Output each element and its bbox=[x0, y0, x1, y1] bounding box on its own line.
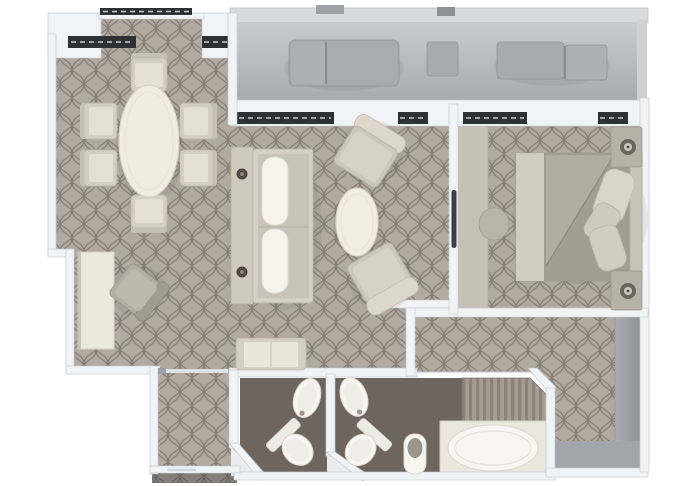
bidet bbox=[404, 434, 426, 474]
bed-foot-runner bbox=[516, 153, 546, 281]
wall-left-upper bbox=[48, 34, 56, 256]
dining-chair-left-1 bbox=[80, 103, 117, 139]
wall-entry-left bbox=[150, 366, 158, 474]
balcony-lounger bbox=[497, 42, 607, 80]
sofa bbox=[253, 149, 313, 303]
balcony-divider-tab bbox=[316, 5, 344, 14]
entry-door bbox=[150, 466, 240, 473]
entry-outside-corridor bbox=[152, 473, 237, 483]
floor-plan-canvas bbox=[0, 0, 680, 486]
wall-bath-bottom bbox=[234, 472, 555, 480]
threshold-tick-l bbox=[158, 368, 166, 374]
wall-bath-partition bbox=[326, 374, 335, 456]
shower-floor bbox=[462, 378, 549, 421]
balcony-side-table bbox=[427, 42, 458, 76]
balcony-divider-tab-2 bbox=[437, 7, 455, 16]
double-bed bbox=[516, 150, 642, 284]
suite-floor-plan bbox=[0, 0, 680, 486]
wall-closet-bottom bbox=[546, 468, 648, 477]
balcony bbox=[230, 5, 648, 106]
dining-chair-right-2 bbox=[180, 150, 217, 186]
dining-chair-left-2 bbox=[80, 150, 117, 186]
nightstand-bottom bbox=[611, 271, 642, 310]
bathrooms bbox=[231, 378, 549, 477]
wall-desk-bottom bbox=[66, 366, 160, 374]
desk bbox=[78, 252, 114, 349]
wall-left-lower bbox=[66, 249, 74, 374]
bedroom-sliding-door-handle bbox=[452, 190, 457, 248]
dining-chair-right-1 bbox=[180, 103, 217, 139]
wall-guest-bath-left bbox=[229, 370, 238, 448]
dining-table bbox=[119, 85, 179, 197]
media-console bbox=[231, 147, 253, 304]
bedroom-stool bbox=[479, 208, 509, 240]
entry-threshold bbox=[158, 369, 236, 373]
balcony-sofa bbox=[289, 40, 399, 86]
wardrobe-run bbox=[615, 316, 641, 443]
closet-floor-strip bbox=[553, 441, 643, 468]
headboard bbox=[630, 150, 642, 284]
bench bbox=[236, 338, 306, 370]
balcony-window-wall bbox=[230, 100, 648, 126]
bathtub bbox=[440, 421, 548, 476]
balcony-side-ledge bbox=[637, 20, 647, 106]
wall-closet-left bbox=[406, 308, 415, 376]
wall-dining-balcony-divider bbox=[228, 13, 237, 125]
dining-chair-bottom bbox=[131, 195, 167, 233]
wall-tub-right bbox=[546, 388, 555, 476]
coffee-table bbox=[336, 188, 378, 256]
nightstand-top bbox=[611, 127, 642, 167]
